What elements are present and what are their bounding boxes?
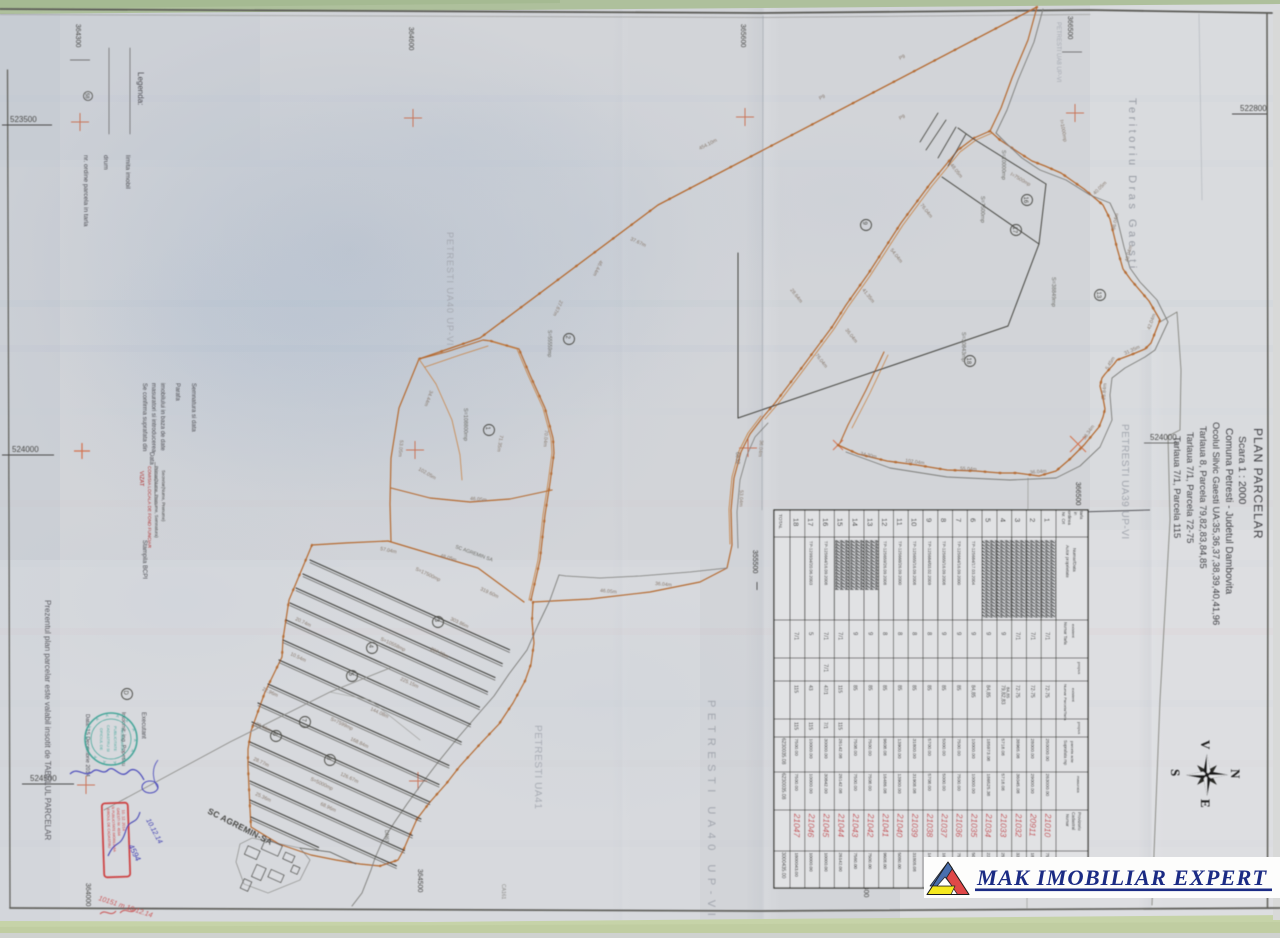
svg-text:84,85: 84,85 [985,685,991,698]
svg-text:15: 15 [836,518,845,526]
svg-text:PETRESTI UA41: PETRESTI UA41 [532,725,543,810]
svg-text:6832: 6832 [734,452,740,464]
svg-text:propus: propus [1077,662,1082,674]
svg-text:21033: 21033 [998,812,1009,837]
svg-text:TP-125659/26.09.2008: TP-125659/26.09.2008 [883,541,888,586]
svg-text:A: A [84,736,89,739]
svg-text:S=10000mp: S=10000mp [1000,150,1006,180]
svg-text:21044: 21044 [836,812,846,837]
svg-text:7/1: 7/1 [822,632,828,641]
svg-text:TOTAL: TOTAL [777,514,783,529]
svg-text:13900.00: 13900.00 [896,774,902,794]
svg-text:PETRESTI UA39 UP-VI: PETRESTI UA39 UP-VI [1119,424,1130,540]
svg-text:COMISIA LOCALA DE FOND FUNCIAR: COMISIA LOCALA DE FOND FUNCIAR [147,466,152,549]
svg-text:Tarlaua 7/1, Parcela 72-75: Tarlaua 7/1, Parcela 72-75 [1184,432,1195,543]
svg-text:7/1: 7/1 [822,722,828,729]
svg-text:DN61: DN61 [383,830,389,843]
svg-text:limita imobil: limita imobil [124,155,131,190]
svg-text:43: 43 [807,685,813,691]
svg-text:9608.00: 9608.00 [882,853,887,870]
svg-text:VIZAT: VIZAT [138,471,144,487]
svg-text:PETRESTI UA40 UP-VI: PETRESTI UA40 UP-VI [705,700,717,921]
svg-text:21043: 21043 [850,812,861,837]
svg-text:TP-125668/26.09.2000: TP-125668/26.09.2000 [897,541,902,586]
svg-text:85: 85 [925,685,931,691]
svg-text:S=7500mp: S=7500mp [979,196,985,223]
svg-text:imobilului in baza de date: imobilului in baza de date [159,383,165,451]
svg-text:Tarlaua 7/1, Parcela 115: Tarlaua 7/1, Parcela 115 [1171,436,1182,538]
svg-text:Scara 1 : 2000: Scara 1 : 2000 [1236,436,1248,504]
svg-text:S=38849mp: S=38849mp [1050,277,1056,307]
svg-text:9608.08: 9608.08 [881,739,887,757]
svg-text:5718.08: 5718.08 [1000,774,1006,792]
svg-text:masuratori si introducerea: masuratori si introducerea [150,383,156,453]
svg-text:CADASTRU SI: CADASTRU SI [106,725,111,752]
svg-text:364000: 364000 [84,883,91,906]
svg-text:7/1: 7/1 [1029,632,1035,641]
svg-text:E: E [1198,799,1213,808]
svg-text:PETRESTI UA40 UP-VI: PETRESTI UA40 UP-VI [445,232,455,347]
svg-text:4: 4 [998,518,1007,522]
svg-text:10000.00: 10000.00 [970,739,976,759]
svg-text:263000.00: 263000.00 [1044,774,1050,797]
svg-text:PUBLICITATE: PUBLICITATE [113,726,118,752]
svg-text:Tarlaua 8, Parcela 79,82,83,84: Tarlaua 8, Parcela 79,82,83,84,85 [1197,426,1208,569]
svg-text:S: S [1168,769,1183,776]
svg-text:7508.00: 7508.00 [867,774,873,792]
svg-text:17: 17 [806,518,815,526]
svg-text:8: 8 [939,518,948,522]
svg-text:Se confirma suprafata din: Se confirma suprafata din [141,383,147,451]
svg-text:TP-125664/16.09.2008: TP-125664/16.09.2008 [823,541,828,586]
svg-text:Numar/Data: Numar/Data [1072,548,1077,572]
svg-text:7508.00: 7508.00 [852,739,858,757]
svg-text:Prezentul plan parcelar este v: Prezentul plan parcelar este valabil ins… [43,600,52,840]
svg-text:84,85: 84,85 [970,685,976,698]
svg-text:Primar(Nume, Prenume, Semnatur: Primar(Nume, Prenume, Semnatura) [154,466,159,538]
svg-text:7500.00: 7500.00 [793,739,799,757]
svg-text:29000.00: 29000.00 [1029,774,1035,794]
svg-text:tarla: tarla [1079,511,1084,520]
svg-text:72-75: 72-75 [1029,685,1035,698]
svg-text:MAK IMOBILIAR EXPERT: MAK IMOBILIAR EXPERT [976,865,1267,890]
svg-text:5000.00: 5000.00 [941,774,947,792]
svg-text:38965.08: 38965.08 [1014,739,1020,759]
svg-text:7560.00: 7560.00 [853,853,858,870]
svg-text:TP-125655/16.09.2008: TP-125655/16.09.2008 [912,541,917,586]
svg-text:12: 12 [880,518,889,526]
svg-text:85: 85 [911,685,917,691]
svg-text:nr. ordine parcela in tarla: nr. ordine parcela in tarla [82,155,89,227]
svg-text:21038: 21038 [925,812,935,837]
svg-text:existent: existent [1071,624,1076,639]
svg-text:Ocolul Silvic Gaesti UA:35,36,: Ocolul Silvic Gaesti UA:35,36,37,38,39,4… [1210,422,1221,625]
svg-text:OFICIUL DE: OFICIUL DE [99,728,104,751]
svg-text:TP-125684/03.02.2009: TP-125684/03.02.2009 [927,541,932,586]
svg-text:Numar Parcela/Tarla: Numar Parcela/Tarla [1063,684,1068,721]
svg-text:26142.08: 26142.08 [837,774,843,794]
svg-text:21036: 21036 [954,812,965,837]
svg-text:7/1: 7/1 [1044,632,1050,641]
svg-text:115: 115 [837,722,843,730]
svg-text:TP-125655/16.09.2008: TP-125655/16.09.2008 [942,541,947,586]
svg-text:Numar: Numar [1065,814,1070,827]
svg-text:PLAN PARCELAR: PLAN PARCELAR [1251,428,1265,539]
svg-text:115: 115 [837,685,843,693]
svg-text:26142.00: 26142.00 [838,853,843,873]
svg-text:72-75: 72-75 [1014,685,1020,698]
svg-text:Stampila BCPI: Stampila BCPI [141,540,147,579]
svg-text:masurata: masurata [1076,776,1081,793]
svg-text:58: 58 [84,93,90,99]
svg-text:existent: existent [1071,688,1076,703]
svg-text:9: 9 [924,518,933,522]
svg-text:7500.00: 7500.00 [955,739,961,757]
svg-text:31800.00: 31800.00 [911,739,917,759]
svg-text:36045.08: 36045.08 [1014,774,1020,794]
svg-text:21045: 21045 [821,812,832,837]
svg-text:5: 5 [984,518,993,522]
svg-text:85: 85 [896,685,902,691]
svg-text:TP-129934/20.06.2003: TP-129934/20.06.2003 [809,541,814,586]
svg-text:115: 115 [792,722,798,730]
svg-text:S=30843mp: S=30843mp [960,332,966,362]
svg-text:parcela acte: parcela acte [1070,741,1075,764]
svg-text:5000.00: 5000.00 [941,739,947,757]
svg-text:Legenda:: Legenda: [136,72,145,105]
svg-text:1: 1 [1043,518,1052,522]
svg-text:79,82,83: 79,82,83 [999,685,1005,705]
svg-text:3: 3 [1013,518,1022,522]
svg-text:6: 6 [969,518,978,522]
svg-text:21032: 21032 [1013,812,1023,837]
svg-text:PETRESTI UA8 UP-VI: PETRESTI UA8 UP-VI [1055,22,1061,83]
svg-text:16: 16 [821,518,830,526]
svg-text:366500: 366500 [1066,16,1073,39]
svg-text:propus: propus [1077,722,1082,734]
svg-text:115: 115 [807,722,813,730]
svg-text:16: 16 [1022,197,1028,204]
svg-text:30000.00: 30000.00 [822,739,828,759]
svg-text:Nr. Crt: Nr. Crt [1061,512,1066,525]
svg-text:2: 2 [1028,518,1037,522]
svg-text:7/1: 7/1 [1014,632,1020,641]
svg-text:185973.08: 185973.08 [985,739,991,762]
svg-text:S=55559mp: S=55559mp [546,330,552,357]
svg-text:Comuna Petresti - Judetul Damb: Comuna Petresti - Judetul Dambovita [1223,428,1234,595]
svg-text:53.04m: 53.04m [737,490,744,507]
svg-text:10000.00: 10000.00 [808,774,814,794]
svg-text:7/1: 7/1 [822,664,828,673]
svg-text:ordinea: ordinea [1067,511,1072,526]
svg-text:7500.00: 7500.00 [852,774,858,792]
svg-text:N: N [1228,769,1243,779]
svg-text:21034: 21034 [983,812,994,837]
svg-text:10000.00: 10000.00 [809,853,814,873]
svg-text:Executant: Executant [140,712,146,739]
svg-text:7/1: 7/1 [837,632,843,641]
svg-text:21039: 21039 [910,812,921,837]
svg-text:366500: 366500 [1074,482,1081,505]
svg-text:21040: 21040 [894,812,905,837]
svg-text:Cadastral: Cadastral [1071,812,1076,830]
svg-text:5700.00: 5700.00 [926,739,932,757]
svg-text:Suprafata mp: Suprafata mp [1063,740,1068,766]
svg-text:186525.38: 186525.38 [985,774,991,797]
svg-text:14: 14 [851,518,860,526]
svg-text:10000.00: 10000.00 [970,774,976,794]
svg-text:72-75: 72-75 [1044,685,1050,698]
svg-text:85: 85 [940,685,946,691]
svg-text:Numar Tarla: Numar Tarla [1063,622,1068,645]
svg-text:21037: 21037 [939,812,950,837]
svg-text:13900.00: 13900.00 [896,739,902,759]
svg-text:523500: 523500 [10,115,37,124]
svg-text:7500.00: 7500.00 [867,739,873,757]
svg-text:3000435.00: 3000435.00 [780,852,786,879]
svg-text:21010: 21010 [1043,812,1054,837]
svg-text:D: D [122,691,128,696]
svg-text:Data: 15 Decembrie 2014: Data: 15 Decembrie 2014 [84,714,90,777]
svg-text:250000.00: 250000.00 [1044,739,1050,762]
svg-text:30842.00: 30842.00 [822,774,828,794]
svg-text:17: 17 [1011,227,1017,234]
svg-text:5080.00: 5080.00 [897,853,902,870]
svg-text:21041: 21041 [880,812,890,837]
svg-text:7: 7 [954,518,963,522]
svg-text:Semnatura si data: Semnatura si data [190,383,196,432]
svg-text:5718.08: 5718.08 [1000,739,1006,757]
svg-text:10. 12. 2014: 10. 12. 2014 [121,810,126,831]
svg-text:364600: 364600 [407,27,414,50]
svg-text:TP-125664/16.09.2000: TP-125664/16.09.2000 [956,541,961,586]
svg-text:524000: 524000 [12,445,39,454]
svg-text:CA161: CA161 [500,884,506,900]
svg-text:13: 13 [1095,292,1101,299]
svg-text:1800043.00: 1800043.00 [794,853,799,878]
svg-text:47/1: 47/1 [822,685,828,695]
svg-text:21047: 21047 [792,812,802,837]
svg-text:10: 10 [910,518,919,526]
svg-text:21042: 21042 [865,812,876,837]
svg-text:85: 85 [852,685,858,691]
svg-text:7500.00: 7500.00 [955,774,961,792]
svg-text:10000.00: 10000.00 [808,739,814,759]
svg-text:Parafa: Parafa [174,383,180,401]
svg-text:31908.08: 31908.08 [911,774,917,794]
svg-text:84,85: 84,85 [1005,687,1010,699]
svg-text:85: 85 [955,685,961,691]
svg-text:85: 85 [866,685,872,691]
svg-text:Data: Data [148,452,154,465]
svg-text:V: V [1198,740,1213,750]
svg-text:13: 13 [865,518,874,526]
svg-text:Secretar(Nume, Prenume): Secretar(Nume, Prenume) [161,470,166,522]
svg-text:522800: 522800 [1240,104,1267,113]
svg-text:IMOBILIARA: IMOBILIARA [120,728,125,751]
svg-text:7500.00: 7500.00 [793,774,799,792]
svg-text:364300: 364300 [74,24,81,47]
svg-text:18: 18 [791,518,800,526]
svg-text:10000.00: 10000.00 [823,853,828,873]
svg-text:20911: 20911 [1027,812,1038,837]
svg-text:26142.08: 26142.08 [837,739,843,759]
svg-text:5708.00: 5708.00 [926,774,932,792]
svg-text:Autor proprietate: Autor proprietate [1065,545,1070,578]
svg-text:85: 85 [881,685,887,691]
svg-text:7/1: 7/1 [792,632,798,641]
svg-text:Provizoriu: Provizoriu [1077,812,1082,831]
svg-text:364500: 364500 [416,869,423,892]
svg-text:S=108800mp: S=108800mp [462,408,468,441]
svg-text:28000.00: 28000.00 [1029,739,1035,759]
svg-text:16486.08: 16486.08 [881,774,887,794]
svg-text:7500.00: 7500.00 [868,853,873,870]
svg-text:365600: 365600 [739,24,746,47]
svg-text:6230035.08: 6230035.08 [780,738,786,765]
svg-text:55.04m: 55.04m [960,466,977,473]
svg-text:drum: drum [102,155,109,170]
svg-text:21035: 21035 [969,812,979,837]
svg-text:A: A [133,739,138,742]
svg-text:11: 11 [895,518,904,526]
svg-text:355500: 355500 [751,550,758,573]
svg-text:21046: 21046 [806,812,817,837]
svg-text:31808.08: 31808.08 [912,853,917,873]
svg-text:115: 115 [792,685,798,693]
svg-text:6230035.08: 6230035.08 [780,773,786,800]
svg-text:TP-125684/17.03.2004: TP-125684/17.03.2004 [971,541,976,586]
